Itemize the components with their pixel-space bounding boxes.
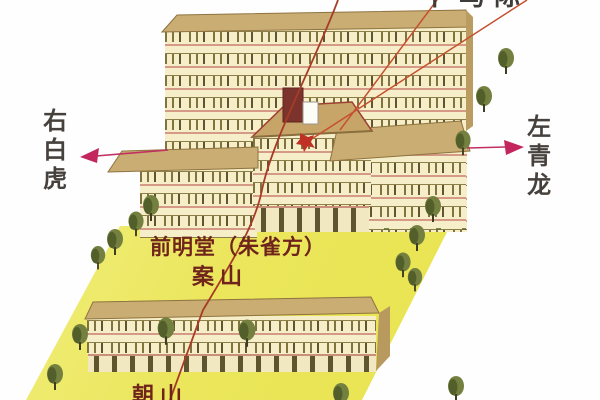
left-azure-dragon-arrow-line xyxy=(467,147,506,148)
central-pavilion-entrance xyxy=(255,206,369,232)
central-pavilion-facade xyxy=(253,134,371,206)
right-arrow-icon xyxy=(504,140,524,155)
label-case-mountain: 案山 xyxy=(192,264,248,289)
label-left-azure-dragon: 左青龙 xyxy=(522,114,550,201)
front-row-building-facade xyxy=(87,316,376,354)
main-building-side xyxy=(466,10,473,131)
label-right-white-tiger: 右白虎 xyxy=(38,108,66,195)
label-top-cropped: 卜马际 xyxy=(424,0,529,12)
front-row-building-doors xyxy=(88,354,376,372)
tree xyxy=(448,376,464,400)
label-facing-mountain: 朝山 xyxy=(132,383,188,400)
tree xyxy=(498,48,514,74)
right-white-tiger-arrow-line xyxy=(96,150,168,156)
left-arrow-icon xyxy=(80,148,99,163)
tree xyxy=(476,86,492,112)
left-wing-facade xyxy=(140,167,257,238)
label-front-bright-hall: 前明堂（朱雀方） xyxy=(150,236,326,260)
fengshui-diagram: 卜马际 右白虎 左青龙 前明堂（朱雀方） 案山 朝山 xyxy=(0,0,600,400)
